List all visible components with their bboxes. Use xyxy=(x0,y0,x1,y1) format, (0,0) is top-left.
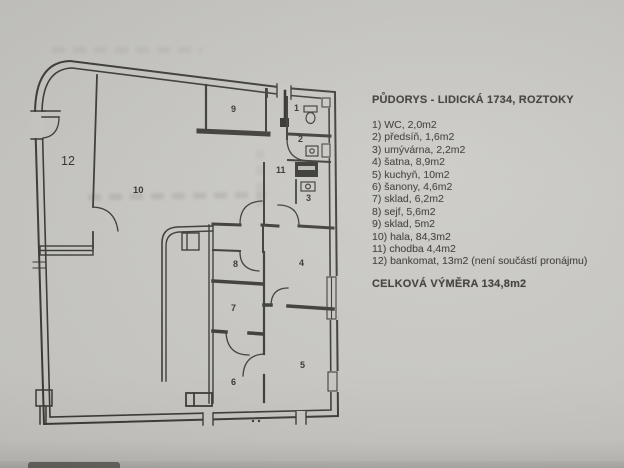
sink-icon-room2 xyxy=(306,146,318,156)
room-label-10: 10 xyxy=(133,185,144,196)
room-label-6: 6 xyxy=(231,377,236,387)
room-label-1: 1 xyxy=(294,103,299,113)
legend-block: PŮDORYS - LIDICKÁ 1734, ROZTOKY 1) WC, 2… xyxy=(372,94,618,290)
room8-7-divider xyxy=(213,281,263,284)
room12-divider-wall xyxy=(93,75,97,248)
room8-top-wall xyxy=(213,250,240,251)
left-wall-door-opening xyxy=(31,112,45,138)
room-label-7: 7 xyxy=(231,303,236,313)
room9-bottom-wall xyxy=(199,131,268,134)
room12-hala-door-arc xyxy=(93,207,118,231)
legend-item-3: 3) umývárna, 2,2m2 xyxy=(372,144,618,156)
total-area-text: CELKOVÁ VÝMĚRA 134,8m2 xyxy=(372,278,618,290)
legend-item-11: 11) chodba 4,4m2 xyxy=(372,243,618,255)
room2-door-arc xyxy=(287,139,307,161)
bottom-wall-break-1 xyxy=(203,412,213,426)
junction-wall-stub xyxy=(262,225,278,226)
plan-title: PŮDORYS - LIDICKÁ 1734, ROZTOKY xyxy=(372,94,618,106)
bottom-wall-break-2 xyxy=(296,411,306,425)
room1-room2-divider xyxy=(288,134,330,136)
room-label-9: 9 xyxy=(231,104,236,114)
room7-6-divider-left xyxy=(213,331,226,332)
room-label-5: 5 xyxy=(300,360,305,370)
duct-box xyxy=(182,233,199,250)
room2-bottom-wall xyxy=(288,160,330,162)
room6-door-arc xyxy=(226,332,249,355)
legend-item-1: 1) WC, 2,0m2 xyxy=(372,119,618,131)
room-label-12: 12 xyxy=(61,154,75,168)
scanned-floorplan-photo: 1 2 3 4 5 6 7 8 9 10 11 12 PŮDORYS - LID… xyxy=(0,0,624,468)
legend-item-5: 5) kuchyň, 10m2 xyxy=(372,169,618,181)
paper-edge-shadow xyxy=(28,462,120,468)
room4-door-arc xyxy=(271,288,288,306)
junction-wall-left xyxy=(213,224,240,225)
room5-door-arc xyxy=(243,354,264,376)
room8-door-arc xyxy=(240,252,259,271)
corridor-door-arc xyxy=(278,205,299,224)
hala-rounded-wall-inner xyxy=(166,231,213,381)
legend-item-2: 2) předsíň, 1,6m2 xyxy=(372,131,618,143)
sink-drain-room3 xyxy=(306,184,311,189)
legend-item-9: 9) sklad, 5m2 xyxy=(372,218,618,230)
room-label-2: 2 xyxy=(298,134,303,144)
legend-item-10: 10) hala, 84,3m2 xyxy=(372,231,618,243)
toilet-icon xyxy=(304,106,317,112)
toilet-bowl-icon xyxy=(306,113,315,124)
scan-dot xyxy=(258,420,260,422)
bottom-pillar xyxy=(186,393,212,406)
legend-item-8: 8) sejf, 5,6m2 xyxy=(372,206,618,218)
room7-6-divider-right xyxy=(249,333,263,334)
room-label-4: 4 xyxy=(299,258,304,268)
legend-item-7: 7) sklad, 6,2m2 xyxy=(372,193,618,205)
room-label-8: 8 xyxy=(233,259,238,269)
sink-drain-room2 xyxy=(310,149,314,153)
legend-item-12: 12) bankomat, 13m2 (není součástí pronáj… xyxy=(372,255,618,267)
room-label-11: 11 xyxy=(276,165,286,175)
legend-item-6: 6) šanony, 4,6m2 xyxy=(372,181,618,193)
room-label-3: 3 xyxy=(306,193,311,203)
sink-icon-room3 xyxy=(301,182,315,191)
corridor-counter-slot xyxy=(298,166,315,170)
room12-entry-door-arc xyxy=(43,117,59,138)
scan-dot xyxy=(252,420,254,422)
legend-item-4: 4) šatna, 8,9m2 xyxy=(372,156,618,168)
hala-door-arc xyxy=(240,201,262,224)
room4-top-wall xyxy=(299,226,333,228)
